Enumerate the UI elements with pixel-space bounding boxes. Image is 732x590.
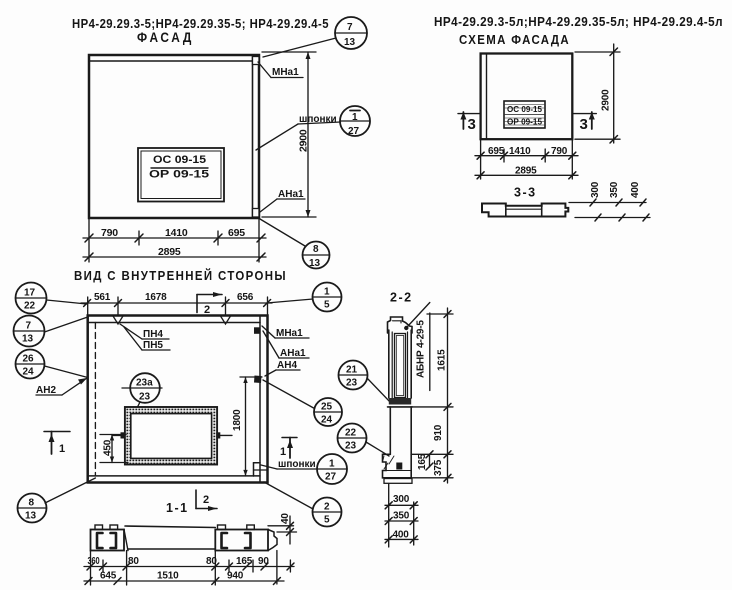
svg-text:80: 80: [128, 556, 139, 567]
svg-text:1: 1: [280, 446, 286, 458]
svg-text:24: 24: [23, 367, 35, 378]
svg-text:АБНР 4-29-5: АБНР 4-29-5: [416, 320, 427, 378]
svg-text:300: 300: [393, 494, 410, 505]
svg-text:400: 400: [630, 181, 641, 198]
svg-text:5: 5: [324, 515, 330, 526]
svg-text:790: 790: [101, 227, 118, 239]
svg-text:940: 940: [227, 571, 244, 582]
svg-text:23: 23: [346, 378, 358, 389]
svg-text:22: 22: [345, 428, 357, 439]
svg-text:2: 2: [324, 502, 330, 513]
svg-text:22: 22: [24, 301, 36, 312]
svg-text:300: 300: [590, 181, 601, 198]
svg-text:360: 360: [88, 556, 100, 567]
svg-text:ВИД С ВНУТРЕННЕЙ СТОРОНЫ: ВИД С ВНУТРЕННЕЙ СТОРОНЫ: [74, 268, 287, 283]
svg-text:ОС 09-15: ОС 09-15: [153, 154, 206, 166]
svg-text:СХЕМА ФАСАДА: СХЕМА ФАСАДА: [459, 33, 570, 47]
svg-text:8: 8: [29, 498, 35, 509]
svg-text:7: 7: [347, 22, 353, 33]
svg-text:ФАСАД: ФАСАД: [137, 30, 194, 45]
svg-text:2900: 2900: [298, 129, 310, 152]
svg-text:3: 3: [468, 116, 478, 133]
svg-text:1615: 1615: [437, 349, 448, 371]
svg-text:13: 13: [25, 511, 37, 522]
svg-text:165: 165: [236, 556, 253, 567]
svg-text:27: 27: [325, 472, 337, 483]
svg-text:ОР 09-15: ОР 09-15: [507, 118, 543, 127]
svg-text:27: 27: [348, 126, 360, 137]
svg-text:40: 40: [280, 513, 291, 524]
svg-text:790: 790: [551, 146, 568, 157]
svg-text:7: 7: [26, 321, 32, 332]
svg-text:ОС 09-15: ОС 09-15: [507, 105, 543, 114]
svg-text:910: 910: [433, 424, 444, 441]
svg-text:17: 17: [24, 288, 36, 299]
svg-text:8: 8: [313, 244, 319, 255]
svg-text:2: 2: [204, 304, 210, 316]
svg-text:1510: 1510: [157, 571, 179, 582]
svg-text:165: 165: [417, 453, 428, 470]
svg-text:1410: 1410: [165, 227, 188, 239]
svg-text:695: 695: [488, 146, 505, 157]
svg-text:МНа1: МНа1: [272, 67, 299, 78]
svg-text:24: 24: [321, 415, 333, 426]
svg-text:2: 2: [203, 494, 209, 506]
svg-text:561: 561: [94, 292, 111, 303]
svg-text:645: 645: [100, 571, 117, 582]
svg-text:3-3: 3-3: [514, 186, 537, 200]
svg-text:5: 5: [324, 300, 330, 311]
svg-text:13: 13: [22, 334, 34, 345]
svg-text:НР4-29.29.3-5л;НР4-29.29.35-5л: НР4-29.29.3-5л;НР4-29.29.35-5л; НР4-29.2…: [434, 15, 723, 29]
svg-text:ОР 09-15: ОР 09-15: [149, 169, 209, 181]
svg-text:1: 1: [59, 443, 65, 455]
svg-text:695: 695: [228, 227, 245, 239]
svg-text:350: 350: [393, 511, 410, 522]
svg-text:26: 26: [23, 354, 35, 365]
svg-text:656: 656: [237, 292, 254, 303]
svg-text:90: 90: [258, 556, 269, 567]
svg-text:450: 450: [103, 439, 114, 456]
svg-text:1410: 1410: [509, 146, 531, 157]
svg-text:1: 1: [324, 287, 330, 298]
svg-text:1678: 1678: [145, 292, 167, 303]
svg-text:2900: 2900: [601, 89, 612, 111]
svg-text:2895: 2895: [515, 166, 537, 177]
svg-text:23а: 23а: [136, 378, 153, 389]
svg-text:400: 400: [393, 530, 410, 541]
svg-text:1800: 1800: [232, 409, 243, 431]
svg-text:НР4-29.29.3-5;НР4-29.29.35-5;: НР4-29.29.3-5;НР4-29.29.35-5; НР4-29.29.…: [72, 17, 329, 31]
svg-text:25: 25: [321, 402, 333, 413]
svg-text:1-1: 1-1: [166, 501, 189, 515]
svg-text:1: 1: [352, 112, 358, 123]
svg-text:1: 1: [329, 459, 335, 470]
svg-text:80: 80: [206, 556, 217, 567]
svg-text:21: 21: [346, 365, 358, 376]
svg-text:2-2: 2-2: [390, 291, 413, 305]
svg-text:13: 13: [344, 37, 356, 48]
svg-text:23: 23: [139, 392, 151, 403]
svg-text:23: 23: [345, 441, 357, 452]
svg-text:350: 350: [609, 181, 620, 198]
svg-text:13: 13: [309, 258, 321, 269]
svg-text:2895: 2895: [158, 246, 181, 258]
svg-text:375: 375: [433, 459, 444, 476]
svg-text:3: 3: [580, 116, 590, 133]
